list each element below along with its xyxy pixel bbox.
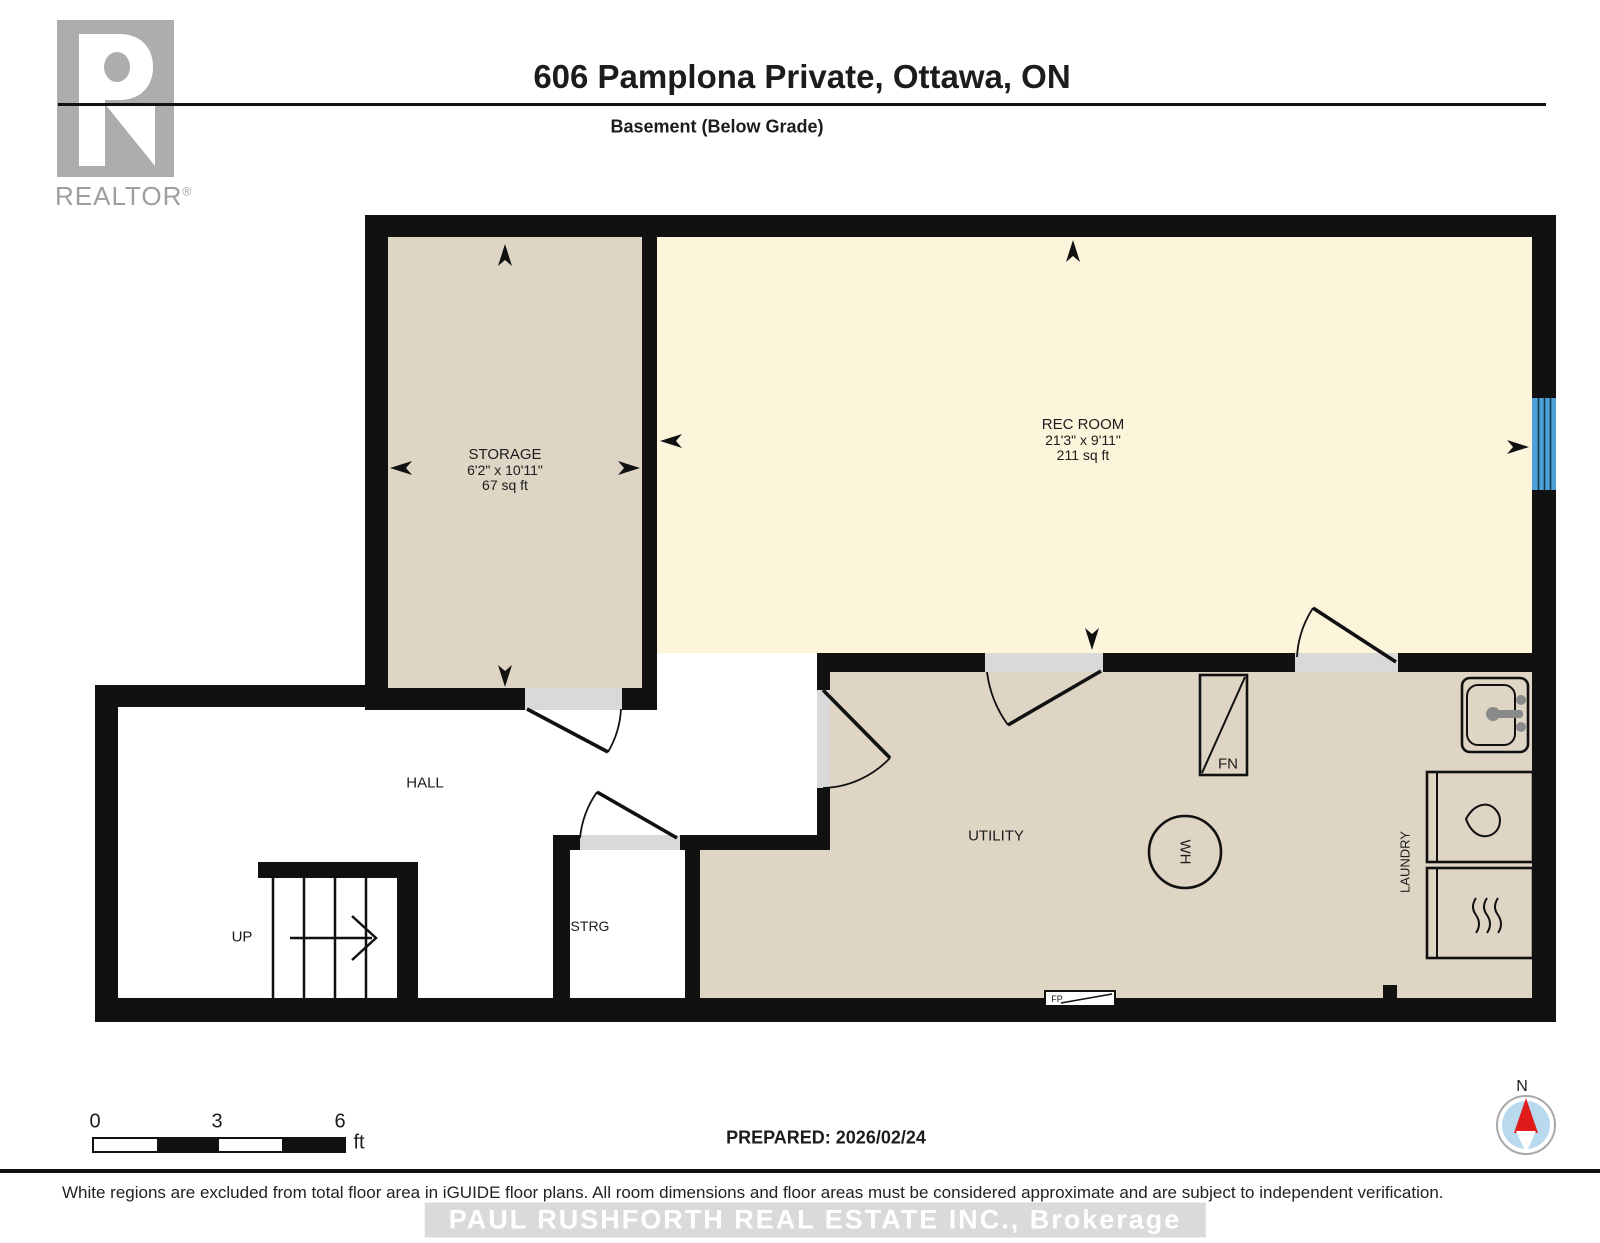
scale-tick-0: 0 bbox=[89, 1111, 100, 1134]
scale-tick-3: 3 bbox=[211, 1111, 222, 1134]
door-swing-hall-utility bbox=[823, 690, 890, 788]
fireplace-label: FP bbox=[1051, 994, 1063, 1004]
rec-dim-arrow-right bbox=[1507, 440, 1529, 454]
brokerage-watermark: PAUL RUSHFORTH REAL ESTATE INC., Brokera… bbox=[425, 1203, 1206, 1238]
rec-dim-arrow-left bbox=[660, 434, 682, 448]
prepared-date: PREPARED: 2026/02/24 bbox=[726, 1128, 926, 1149]
up-label: UP bbox=[232, 929, 253, 946]
storage-dim-arrow-down bbox=[498, 665, 512, 687]
laundry-label: LAUNDRY bbox=[1398, 831, 1413, 893]
floorplan-page: REALTOR® 606 Pamplona Private, Ottawa, O… bbox=[0, 0, 1600, 1243]
furnace-label: FN bbox=[1218, 756, 1238, 773]
footer-divider bbox=[0, 1169, 1600, 1173]
compass-icon bbox=[1497, 1096, 1555, 1154]
compass-north-label: N bbox=[1516, 1078, 1528, 1096]
storage-dim-arrow-up bbox=[498, 244, 512, 266]
disclaimer-text: White regions are excluded from total fl… bbox=[62, 1183, 1444, 1203]
room-dimensions: 21'3" x 9'11" bbox=[1042, 432, 1125, 448]
scale-segment bbox=[219, 1139, 282, 1151]
room-area: 67 sq ft bbox=[467, 478, 543, 494]
room-dimensions: 6'2" x 10'11" bbox=[467, 462, 543, 478]
storage-dim-arrow-right bbox=[618, 461, 640, 475]
room-area: 211 sq ft bbox=[1042, 448, 1125, 464]
dimension-arrows bbox=[390, 240, 1529, 687]
scale-tick-6: 6 bbox=[334, 1111, 345, 1134]
room-name: REC ROOM bbox=[1042, 417, 1125, 433]
sink-icon bbox=[1462, 678, 1528, 752]
door-swing-storage bbox=[527, 709, 621, 752]
rec-dim-arrow-up bbox=[1066, 240, 1080, 262]
water-heater-label: WH bbox=[1177, 840, 1194, 865]
washer-icon bbox=[1427, 772, 1533, 862]
scale-segment bbox=[94, 1139, 157, 1151]
stairs bbox=[273, 878, 376, 998]
scale-unit: ft bbox=[353, 1132, 364, 1155]
scale-bar bbox=[92, 1137, 346, 1153]
door-swing-utility bbox=[987, 671, 1101, 725]
floorplan-drawing bbox=[0, 0, 1600, 1243]
rec-dim-arrow-down bbox=[1085, 628, 1099, 650]
utility-label: UTILITY bbox=[968, 828, 1024, 845]
rec-room-label: REC ROOM 21'3" x 9'11" 211 sq ft bbox=[1042, 417, 1125, 464]
window bbox=[1532, 398, 1556, 490]
scale-segment bbox=[157, 1139, 220, 1151]
room-name: STORAGE bbox=[467, 447, 543, 463]
storage-room-label: STORAGE 6'2" x 10'11" 67 sq ft bbox=[467, 447, 543, 494]
storage-dim-arrow-left bbox=[390, 461, 412, 475]
scale-segment bbox=[282, 1139, 345, 1151]
dryer-icon bbox=[1427, 868, 1533, 958]
strg-label: STRG bbox=[571, 918, 610, 934]
hall-label: HALL bbox=[406, 775, 444, 792]
door-swing-strg bbox=[580, 792, 677, 838]
door-swing-rec bbox=[1297, 608, 1396, 662]
